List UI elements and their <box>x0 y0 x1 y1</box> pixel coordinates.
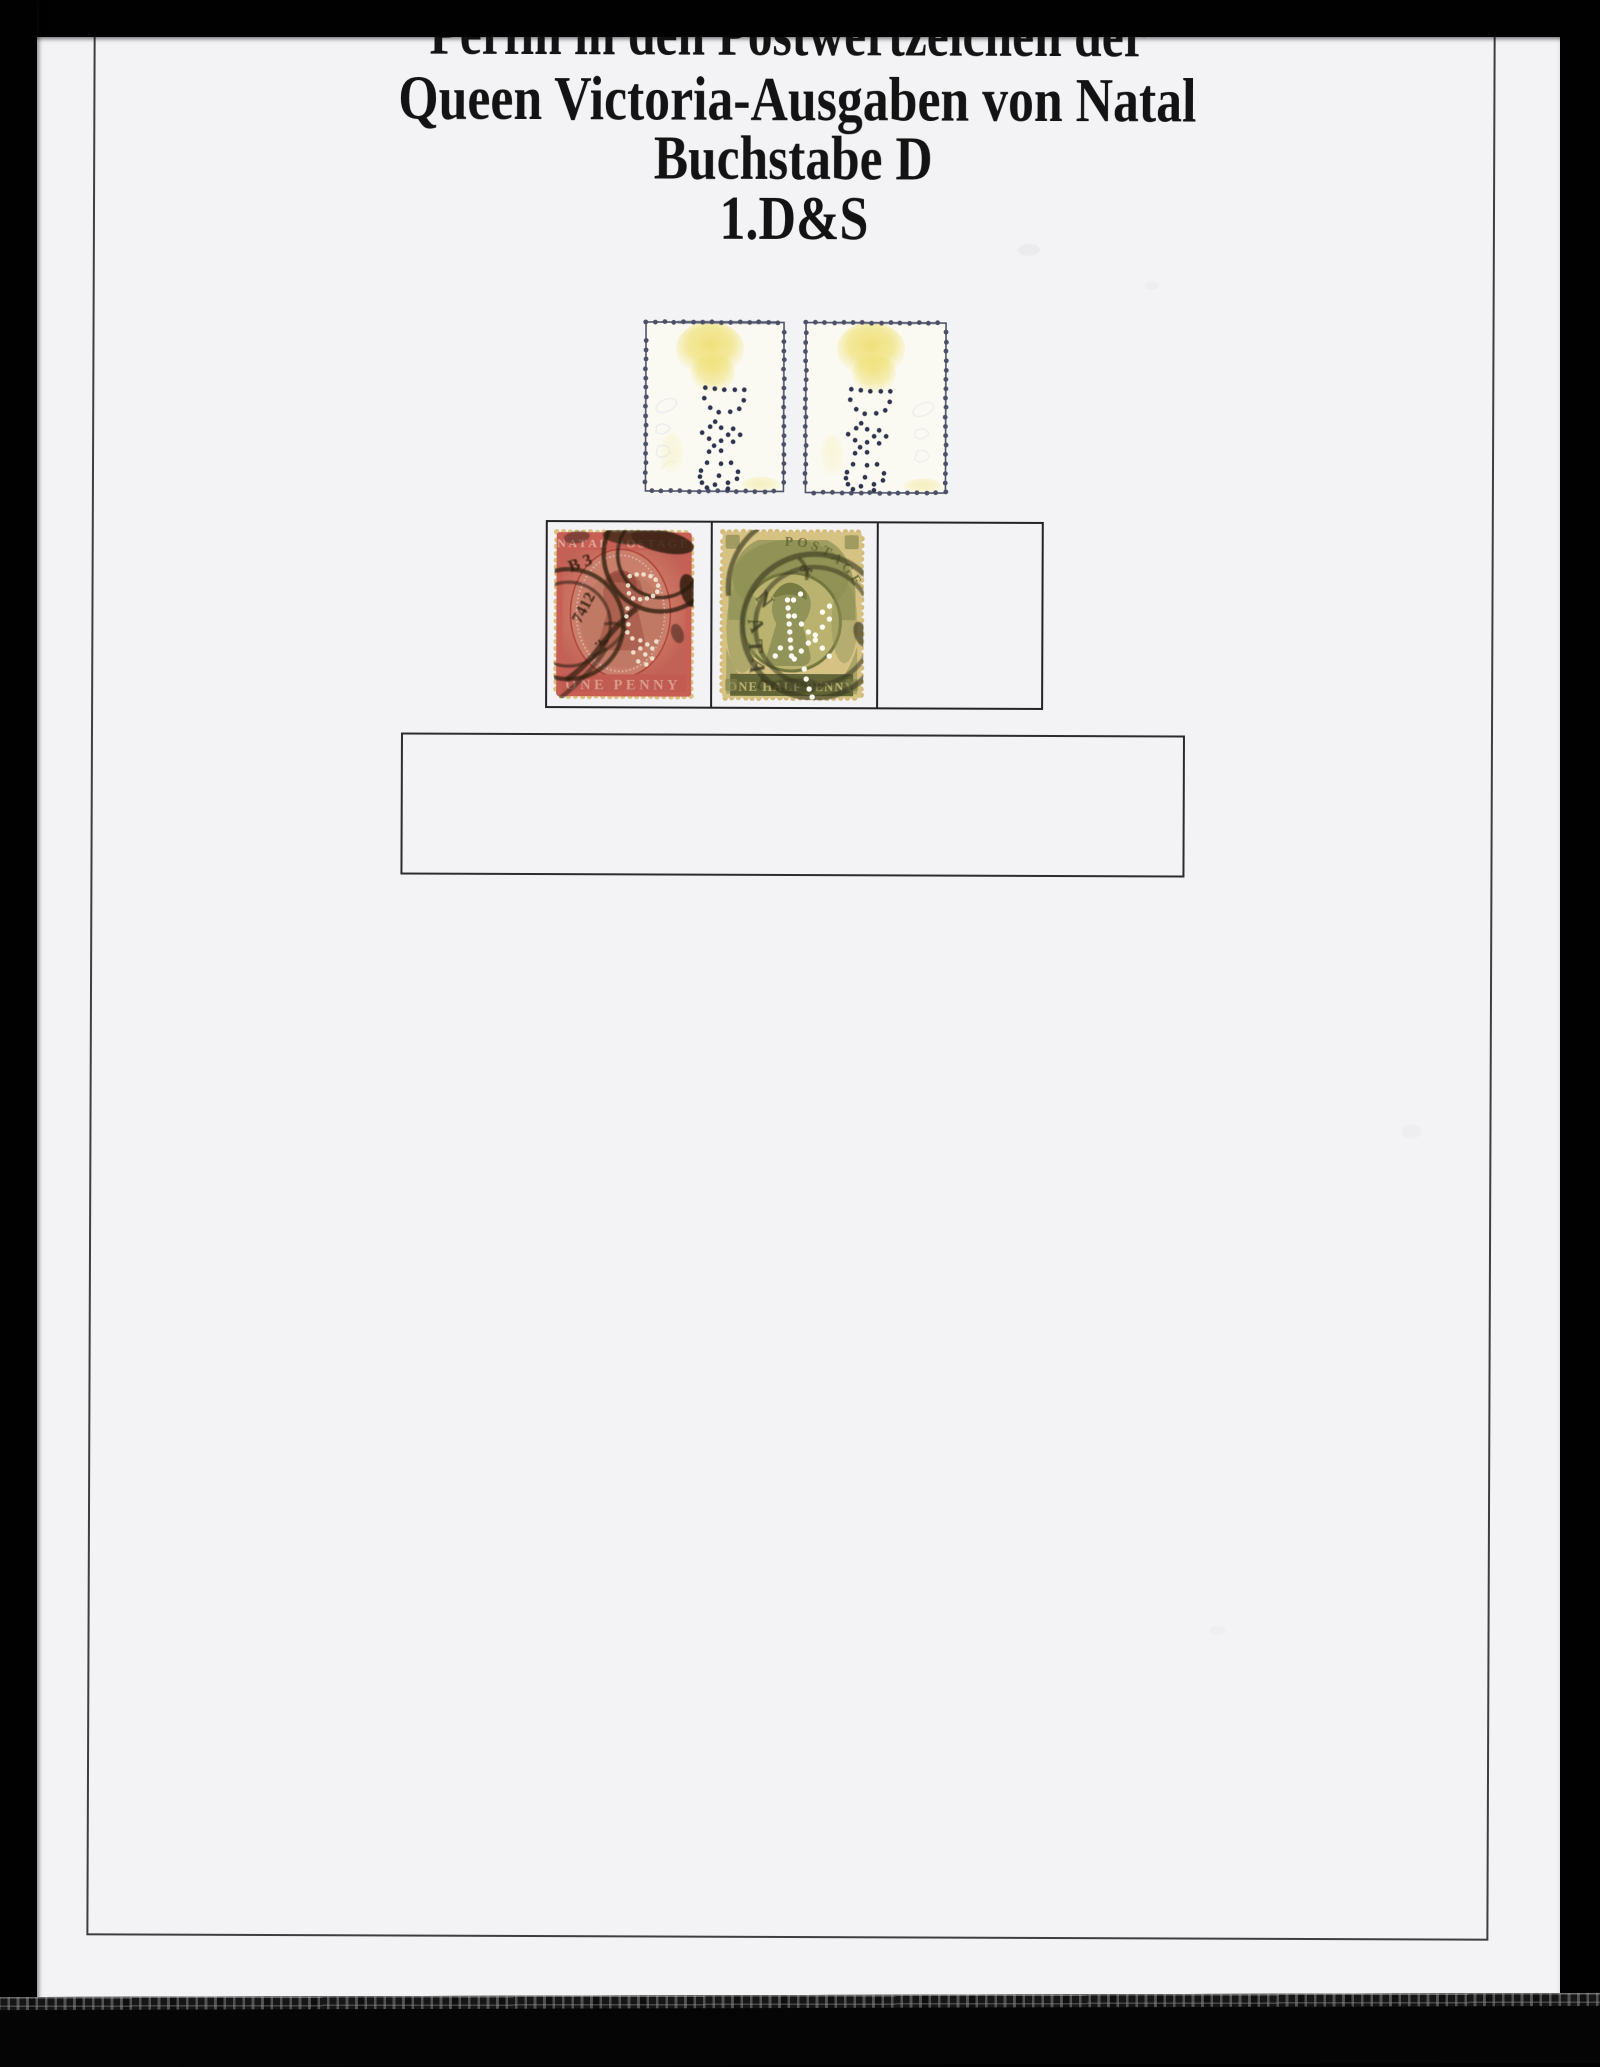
svg-text:T: T <box>743 639 768 655</box>
